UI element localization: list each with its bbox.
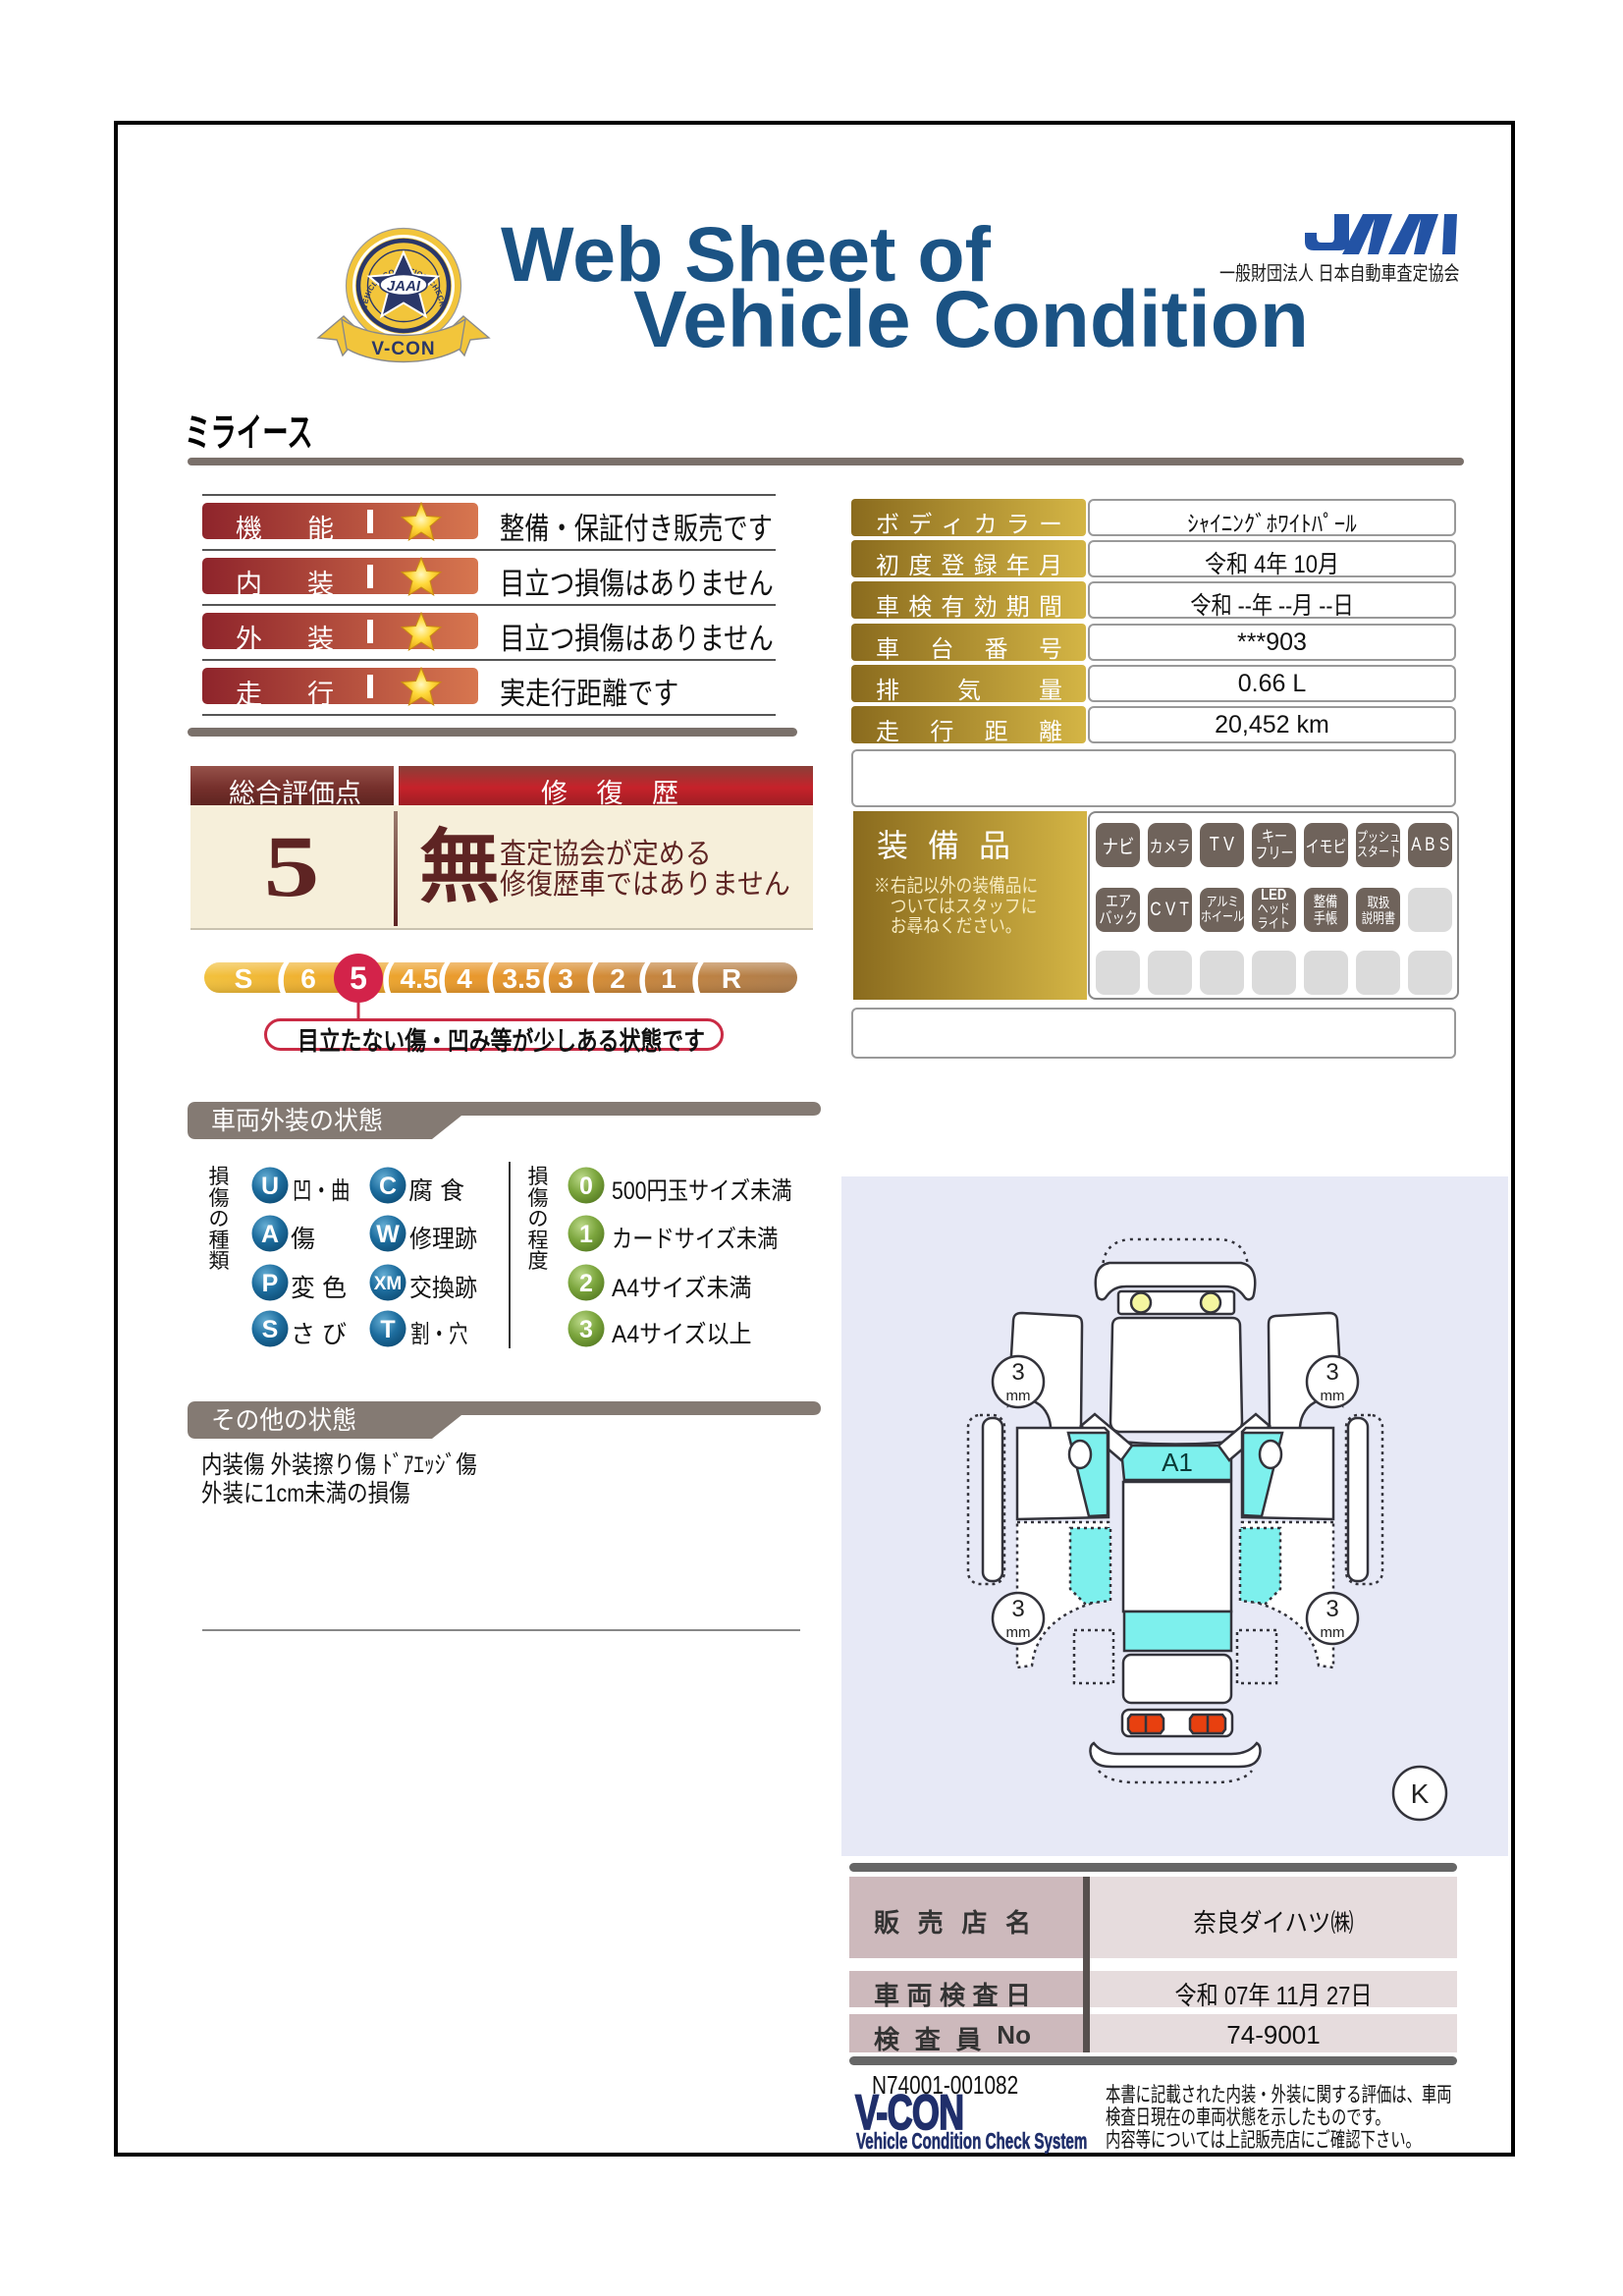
svg-text:1: 1	[661, 963, 676, 994]
svg-text:(: (	[585, 957, 599, 1000]
svg-text:6: 6	[300, 963, 316, 994]
svg-text:4: 4	[457, 963, 472, 994]
svg-text:3: 3	[1325, 1596, 1338, 1622]
svg-text:A: A	[261, 1221, 279, 1248]
svg-text:3: 3	[1011, 1359, 1024, 1386]
svg-text:U: U	[261, 1173, 279, 1200]
svg-text:(: (	[381, 957, 395, 1000]
svg-text:mm: mm	[1321, 1624, 1345, 1641]
svg-text:4.5: 4.5	[401, 963, 439, 994]
svg-text:P: P	[262, 1270, 279, 1297]
svg-text:mm: mm	[1006, 1388, 1031, 1404]
svg-text:(: (	[276, 957, 290, 1000]
svg-text:3: 3	[1011, 1596, 1024, 1622]
svg-text:その他の状態: その他の状態	[211, 1405, 356, 1435]
svg-text:C: C	[379, 1173, 397, 1200]
svg-text:R: R	[722, 963, 741, 994]
svg-text:(: (	[437, 957, 451, 1000]
svg-text:3.5: 3.5	[503, 963, 541, 994]
svg-text:mm: mm	[1321, 1388, 1345, 1404]
svg-text:3: 3	[1325, 1359, 1338, 1386]
svg-text:XM: XM	[374, 1274, 403, 1294]
svg-text:JAAI: JAAI	[387, 278, 421, 295]
svg-text:A1: A1	[1162, 1448, 1193, 1477]
svg-text:2: 2	[579, 1270, 593, 1297]
svg-text:S: S	[262, 1316, 279, 1343]
svg-text:(: (	[485, 957, 499, 1000]
svg-text:0: 0	[579, 1173, 593, 1200]
svg-text:(: (	[541, 957, 555, 1000]
svg-text:S: S	[235, 963, 253, 994]
svg-text:車両外装の状態: 車両外装の状態	[211, 1106, 383, 1135]
svg-text:V-CON: V-CON	[371, 339, 435, 359]
svg-text:T: T	[380, 1316, 395, 1343]
svg-text:W: W	[376, 1221, 400, 1248]
svg-text:3: 3	[558, 963, 573, 994]
svg-text:2: 2	[610, 963, 625, 994]
svg-text:mm: mm	[1006, 1624, 1031, 1641]
svg-text:K: K	[1411, 1778, 1430, 1809]
svg-text:3: 3	[579, 1316, 593, 1343]
svg-text:(: (	[690, 957, 704, 1000]
svg-text:(: (	[637, 957, 651, 1000]
svg-text:5: 5	[350, 960, 367, 996]
svg-text:1: 1	[579, 1221, 593, 1248]
